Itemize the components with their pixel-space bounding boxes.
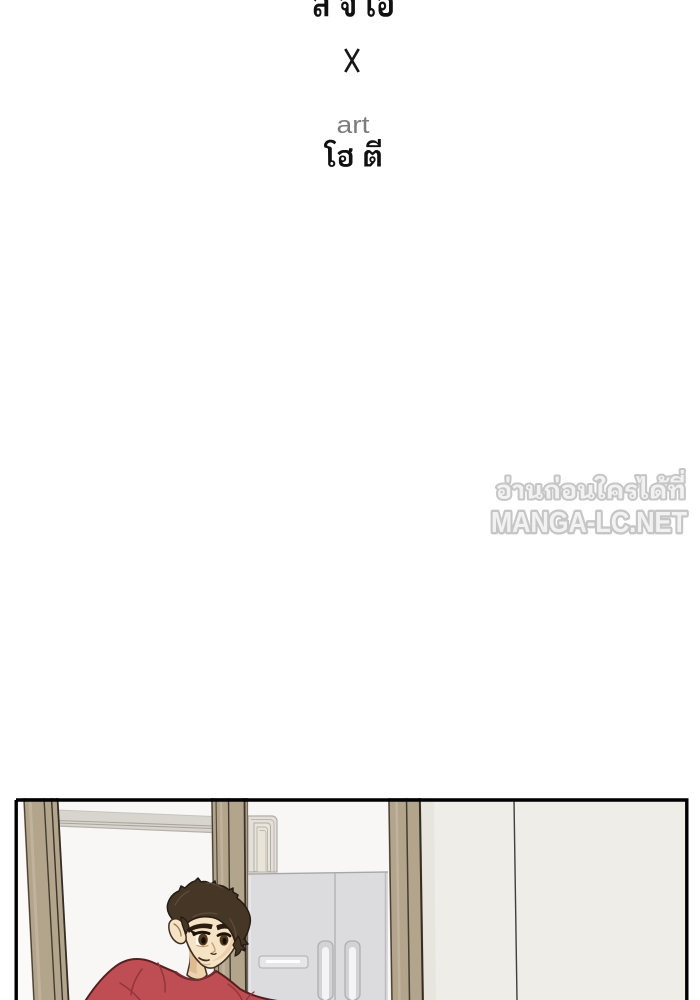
svg-text:MANGA-LC.NET: MANGA-LC.NET <box>491 507 687 539</box>
svg-text:art: art <box>337 112 370 139</box>
